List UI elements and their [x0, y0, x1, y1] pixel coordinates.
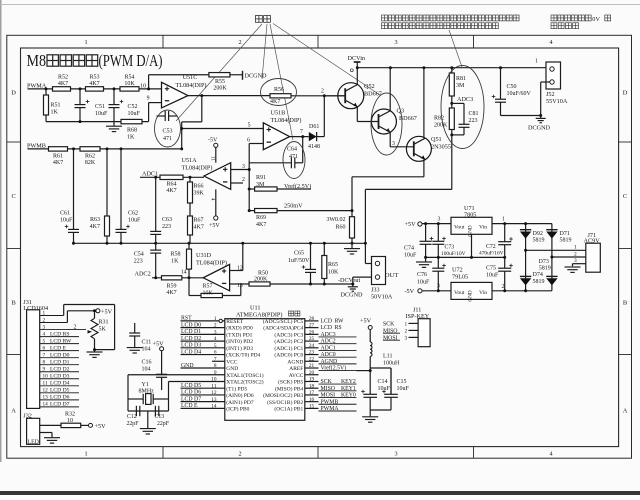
svg-text:2N3055: 2N3055 — [431, 144, 451, 151]
svg-text:104: 104 — [142, 347, 151, 353]
svg-text:10uF: 10uF — [486, 273, 499, 279]
svg-text:2: 2 — [405, 328, 408, 334]
svg-text:ADC3: ADC3 — [457, 96, 473, 103]
svg-text:39K: 39K — [194, 191, 205, 197]
svg-text:11: 11 — [43, 381, 48, 387]
svg-text:U51C: U51C — [183, 74, 198, 81]
svg-text:L11: L11 — [383, 354, 392, 360]
svg-text:D61: D61 — [309, 124, 319, 130]
svg-text:2: 2 — [214, 323, 217, 329]
svg-text:VCC: VCC — [226, 359, 238, 365]
svg-text:R61: R61 — [53, 154, 63, 160]
svg-text:LCD RW: LCD RW — [50, 338, 72, 344]
svg-text:+5V: +5V — [209, 223, 220, 229]
svg-text:18: 18 — [309, 383, 315, 389]
svg-text:5819: 5819 — [533, 238, 545, 244]
svg-text:LCD D4: LCD D4 — [181, 349, 201, 355]
svg-text:(SCK) PB5: (SCK) PB5 — [278, 379, 303, 386]
svg-text:4K7: 4K7 — [90, 224, 100, 230]
svg-text:AGND: AGND — [287, 359, 303, 365]
svg-text:C81: C81 — [469, 111, 479, 117]
svg-text:4: 4 — [214, 336, 217, 342]
svg-text:2: 2 — [321, 89, 324, 95]
svg-text:1K: 1K — [51, 110, 59, 116]
svg-text:C14: C14 — [378, 379, 388, 385]
svg-text:2: 2 — [242, 177, 245, 183]
svg-text:4: 4 — [43, 331, 46, 337]
svg-text:1K: 1K — [171, 259, 179, 265]
svg-text:5819: 5819 — [539, 266, 551, 272]
svg-text:2: 2 — [74, 325, 77, 331]
svg-text:223: 223 — [162, 224, 171, 230]
svg-text:D: D — [11, 89, 16, 96]
svg-text:C74: C74 — [404, 245, 414, 251]
svg-text:10uF: 10uF — [128, 111, 141, 117]
svg-text:470uF/16V: 470uF/16V — [479, 251, 504, 257]
svg-text:LCD D7: LCD D7 — [50, 402, 70, 408]
svg-text:XTAL2(TOSC2): XTAL2(TOSC2) — [226, 379, 264, 386]
svg-text:19: 19 — [309, 377, 315, 383]
svg-text:TL084(DIP): TL084(DIP) — [176, 82, 207, 89]
svg-text:R69: R69 — [256, 215, 266, 221]
svg-text:LCD D6: LCD D6 — [181, 390, 201, 396]
svg-text:R65: R65 — [328, 262, 338, 268]
svg-text:10uF: 10uF — [397, 386, 410, 392]
svg-text:GND: GND — [468, 290, 474, 301]
svg-text:4K7: 4K7 — [194, 225, 204, 231]
svg-text:C64: C64 — [287, 147, 297, 153]
svg-text:16: 16 — [309, 397, 315, 403]
svg-text:D: D — [623, 89, 628, 96]
svg-text:C50: C50 — [507, 84, 517, 90]
svg-text:+5V: +5V — [153, 340, 165, 347]
svg-text:GND: GND — [181, 363, 194, 369]
svg-text:D92: D92 — [533, 231, 543, 237]
svg-text:R81: R81 — [456, 76, 466, 82]
svg-text:R54: R54 — [124, 75, 134, 81]
svg-text:(SS/OC1B) PB2: (SS/OC1B) PB2 — [267, 399, 303, 406]
svg-text:C13: C13 — [155, 414, 165, 420]
svg-text:RESET: RESET — [226, 319, 243, 325]
svg-text:8: 8 — [43, 360, 46, 366]
svg-text:1: 1 — [84, 39, 87, 46]
svg-text:0V: 0V — [592, 16, 600, 23]
svg-text:U72: U72 — [452, 266, 463, 273]
svg-text:-DCVout: -DCVout — [338, 277, 361, 284]
svg-text:7: 7 — [300, 129, 303, 135]
svg-text:R91: R91 — [256, 175, 266, 181]
svg-text:AVCC: AVCC — [289, 373, 304, 379]
svg-text:Y1: Y1 — [142, 382, 149, 388]
svg-text:2: 2 — [238, 39, 241, 46]
svg-text:7805: 7805 — [464, 212, 476, 219]
svg-text:(OC1A) PB1: (OC1A) PB1 — [274, 405, 303, 412]
svg-text:GND: GND — [468, 225, 474, 236]
svg-text:10uF/60V: 10uF/60V — [507, 91, 532, 97]
svg-text:Q52: Q52 — [364, 83, 375, 90]
svg-text:LCD D0: LCD D0 — [50, 352, 70, 358]
svg-text:Vout: Vout — [454, 290, 465, 296]
svg-text:R62: R62 — [85, 154, 95, 160]
svg-text:10: 10 — [67, 418, 73, 424]
svg-text:471: 471 — [289, 154, 298, 160]
svg-text:XTAL1(TOSC1): XTAL1(TOSC1) — [226, 372, 264, 379]
svg-text:12: 12 — [211, 390, 217, 396]
svg-text:R59: R59 — [166, 283, 176, 289]
svg-text:(ADC2) PC2: (ADC2) PC2 — [274, 338, 303, 345]
svg-text:3M: 3M — [456, 83, 465, 89]
svg-text:R55: R55 — [215, 79, 225, 85]
svg-text:27: 27 — [309, 323, 315, 329]
svg-text:3W0.02: 3W0.02 — [326, 217, 345, 223]
svg-text:1uF/50V: 1uF/50V — [288, 258, 310, 264]
svg-text:R56: R56 — [274, 87, 284, 93]
svg-text:TL084(DIP): TL084(DIP) — [271, 117, 302, 124]
svg-text:J33: J33 — [371, 287, 380, 294]
svg-text:B: B — [623, 300, 627, 307]
svg-text:C53: C53 — [162, 129, 172, 135]
svg-text:+5V: +5V — [360, 318, 372, 325]
svg-text:Vin: Vin — [479, 290, 487, 296]
svg-text:7: 7 — [214, 356, 217, 362]
svg-text:4: 4 — [549, 451, 552, 458]
svg-text:1: 1 — [405, 321, 408, 327]
svg-text:Vin: Vin — [479, 225, 487, 231]
svg-text:C76: C76 — [417, 272, 427, 278]
svg-text:7: 7 — [43, 352, 46, 358]
svg-text:3M: 3M — [256, 182, 265, 188]
svg-text:ATMEGA8(PDIP): ATMEGA8(PDIP) — [236, 312, 282, 319]
svg-text:25: 25 — [309, 336, 315, 342]
svg-text:10uF: 10uF — [417, 280, 430, 286]
svg-text:R68: R68 — [127, 128, 137, 134]
svg-text:1K: 1K — [127, 135, 135, 141]
svg-text:5: 5 — [248, 122, 251, 128]
svg-text:R67: R67 — [194, 218, 204, 224]
svg-text:10K: 10K — [203, 291, 214, 297]
svg-text:U11: U11 — [250, 305, 260, 312]
svg-text:C72: C72 — [486, 244, 496, 250]
svg-text:LCD D3: LCD D3 — [181, 343, 201, 349]
svg-text:(ADC0) PC0: (ADC0) PC0 — [274, 352, 303, 359]
svg-text:(ADC1) PC1: (ADC1) PC1 — [274, 345, 303, 352]
svg-text:R50: R50 — [258, 270, 268, 276]
svg-text:R52: R52 — [58, 75, 68, 81]
svg-text:104: 104 — [142, 367, 151, 373]
svg-text:C62: C62 — [128, 211, 138, 217]
svg-text:10uF: 10uF — [404, 252, 417, 258]
svg-text:R57: R57 — [203, 284, 213, 290]
svg-text:100uF/10V: 100uF/10V — [441, 251, 466, 257]
svg-text:-5V: -5V — [405, 288, 415, 295]
svg-text:(MOSI/OC2) PB3: (MOSI/OC2) PB3 — [263, 392, 303, 399]
svg-text:6: 6 — [214, 350, 217, 356]
svg-text:5819: 5819 — [560, 238, 572, 244]
svg-text:LCD D2: LCD D2 — [50, 367, 70, 373]
svg-text:DCGND: DCGND — [341, 292, 364, 299]
svg-text:RW: RW — [335, 319, 345, 325]
svg-text:LCD D1: LCD D1 — [181, 329, 201, 335]
svg-text:1: 1 — [43, 310, 46, 316]
svg-text:LCD D5: LCD D5 — [181, 383, 201, 389]
svg-text:14: 14 — [181, 270, 187, 276]
svg-text:R60: R60 — [335, 225, 345, 231]
svg-text:1: 1 — [535, 58, 538, 64]
svg-text:Q51: Q51 — [431, 136, 442, 143]
svg-text:3: 3 — [574, 258, 577, 264]
svg-text:C11: C11 — [142, 340, 152, 346]
svg-text:C65: C65 — [294, 251, 304, 257]
svg-text:SCK: SCK — [383, 321, 395, 327]
svg-text:10K: 10K — [328, 270, 339, 276]
svg-text:223: 223 — [134, 259, 143, 265]
svg-text:LCD: LCD — [321, 325, 333, 331]
svg-text:79L05: 79L05 — [452, 273, 468, 280]
svg-text:200K: 200K — [254, 277, 268, 283]
svg-text:C61: C61 — [60, 211, 70, 217]
svg-text:LCD D5: LCD D5 — [50, 388, 70, 394]
svg-text:AREF: AREF — [289, 366, 303, 372]
svg-text:(PWM D/A): (PWM D/A) — [99, 51, 163, 70]
svg-text:200K: 200K — [434, 123, 448, 129]
svg-text:55V10A: 55V10A — [546, 98, 568, 105]
svg-text:3: 3 — [394, 451, 397, 458]
svg-text:R63: R63 — [90, 217, 100, 223]
svg-text:RST: RST — [181, 316, 192, 322]
svg-text:5: 5 — [214, 343, 217, 349]
svg-text:C73: C73 — [445, 244, 455, 250]
svg-text:D71: D71 — [560, 231, 570, 237]
svg-text:AC9V: AC9V — [584, 238, 601, 245]
svg-text:(T1) PD5: (T1) PD5 — [226, 385, 247, 392]
svg-text:4148: 4148 — [308, 144, 320, 150]
svg-text:+5V: +5V — [95, 423, 107, 430]
svg-text:RS: RS — [335, 325, 342, 331]
svg-text:15: 15 — [309, 403, 315, 409]
svg-text:5819: 5819 — [533, 279, 545, 285]
svg-text:(ADC3) PC3: (ADC3) PC3 — [274, 331, 303, 338]
svg-text:22pF: 22pF — [157, 421, 170, 427]
svg-text:6: 6 — [43, 345, 46, 351]
svg-text:A: A — [623, 407, 628, 414]
svg-text:LCD RS: LCD RS — [50, 331, 69, 337]
svg-text:(AIN0) PD6: (AIN0) PD6 — [226, 392, 254, 399]
svg-text:22: 22 — [309, 356, 315, 362]
svg-text:R58: R58 — [170, 252, 180, 258]
svg-text:LCD D1: LCD D1 — [50, 360, 70, 366]
svg-text:C51: C51 — [95, 104, 105, 110]
svg-text:LCD D7: LCD D7 — [181, 396, 201, 402]
svg-text:B: B — [11, 300, 15, 307]
svg-text:2: 2 — [238, 451, 241, 458]
svg-text:TL084(DIP): TL084(DIP) — [196, 259, 227, 266]
svg-text:(RXD) PD0: (RXD) PD0 — [226, 325, 253, 332]
svg-text:223: 223 — [469, 118, 478, 124]
svg-text:(INT1) PD3: (INT1) PD3 — [226, 345, 253, 352]
svg-text:4K7: 4K7 — [53, 160, 63, 166]
svg-text:C15: C15 — [397, 379, 407, 385]
svg-text:1: 1 — [502, 217, 505, 223]
svg-text:C63: C63 — [162, 217, 172, 223]
svg-text:ADC2: ADC2 — [135, 271, 151, 278]
svg-text:LCD E: LCD E — [181, 403, 198, 409]
svg-text:U31D: U31D — [196, 252, 212, 259]
svg-text:4K7: 4K7 — [256, 222, 266, 228]
svg-text:LCD D0: LCD D0 — [181, 322, 201, 328]
svg-text:13: 13 — [43, 395, 49, 401]
svg-text:GND: GND — [226, 366, 238, 372]
svg-text:Vout: Vout — [454, 225, 465, 231]
svg-text:(AIN1) PD7: (AIN1) PD7 — [226, 399, 254, 406]
svg-text:14: 14 — [43, 402, 49, 408]
svg-text:PWMA: PWMA — [27, 82, 47, 89]
svg-text:100uH: 100uH — [383, 361, 400, 367]
svg-text:17: 17 — [309, 390, 315, 396]
svg-text:13: 13 — [211, 397, 217, 403]
svg-text:U51B: U51B — [271, 110, 286, 117]
svg-text:24: 24 — [309, 343, 315, 349]
svg-text:M8: M8 — [27, 51, 47, 70]
svg-text:8: 8 — [214, 363, 217, 369]
svg-text:C: C — [11, 193, 15, 200]
svg-text:3: 3 — [394, 39, 397, 46]
svg-text:1: 1 — [84, 451, 87, 458]
svg-text:22pF: 22pF — [127, 421, 140, 427]
svg-text:LCD E: LCD E — [50, 345, 67, 351]
svg-text:28: 28 — [309, 316, 315, 322]
svg-text:LCD D4: LCD D4 — [50, 381, 70, 387]
svg-text:LCD D6: LCD D6 — [50, 395, 70, 401]
svg-text:9: 9 — [43, 367, 46, 373]
svg-text:DCGND: DCGND — [528, 125, 551, 132]
svg-text:10uF: 10uF — [60, 218, 73, 224]
svg-text:2: 2 — [502, 284, 505, 290]
svg-text:12: 12 — [43, 388, 49, 394]
svg-text:3: 3 — [214, 329, 217, 335]
svg-text:(XCK/T0) PD4: (XCK/T0) PD4 — [226, 352, 260, 359]
svg-text:C52: C52 — [128, 104, 138, 110]
svg-text:A: A — [11, 407, 16, 414]
svg-text:D74: D74 — [533, 272, 543, 278]
svg-text:200K: 200K — [213, 85, 227, 91]
svg-text:20: 20 — [309, 370, 315, 376]
svg-text:4K7: 4K7 — [166, 188, 176, 194]
svg-text:3: 3 — [392, 141, 395, 147]
svg-text:U51A: U51A — [182, 157, 198, 164]
svg-text:4K7: 4K7 — [89, 81, 99, 87]
svg-text:(INT0) PD2: (INT0) PD2 — [226, 338, 253, 345]
svg-text:21: 21 — [309, 363, 315, 369]
svg-text:R31: R31 — [99, 320, 109, 326]
svg-text:6: 6 — [247, 137, 250, 143]
svg-text:4K7: 4K7 — [270, 99, 280, 105]
svg-text:(ICP) PB0: (ICP) PB0 — [226, 405, 249, 412]
svg-text:14: 14 — [211, 403, 217, 409]
svg-text:10: 10 — [43, 374, 49, 380]
svg-text:3: 3 — [438, 217, 441, 223]
svg-text:5: 5 — [43, 338, 46, 344]
svg-text:10K: 10K — [124, 81, 135, 87]
svg-text:10: 10 — [140, 83, 146, 89]
svg-text:(ADC5/SCL) PC5: (ADC5/SCL) PC5 — [263, 318, 304, 325]
svg-text:C54: C54 — [134, 252, 144, 258]
svg-text:1: 1 — [574, 245, 577, 251]
svg-text:4K7: 4K7 — [58, 81, 68, 87]
svg-text:23: 23 — [309, 350, 315, 356]
svg-text:C16: C16 — [142, 360, 152, 366]
svg-text:C12: C12 — [127, 414, 137, 420]
svg-text:471: 471 — [163, 136, 172, 142]
svg-text:R66: R66 — [194, 184, 204, 190]
svg-text:R64: R64 — [166, 182, 176, 188]
svg-text:3: 3 — [43, 324, 46, 330]
svg-text:9: 9 — [147, 95, 150, 101]
svg-text:DCVin: DCVin — [348, 55, 366, 62]
svg-text:1: 1 — [214, 316, 217, 322]
svg-text:LCD: LCD — [321, 319, 333, 325]
svg-text:C75: C75 — [486, 266, 496, 272]
svg-text:LCD D2: LCD D2 — [181, 336, 201, 342]
svg-text:11: 11 — [210, 156, 215, 161]
svg-text:3: 3 — [437, 284, 440, 290]
svg-text:4: 4 — [549, 39, 552, 46]
svg-text:4K7: 4K7 — [166, 290, 176, 296]
svg-text:(MISO) PB4: (MISO) PB4 — [275, 385, 304, 392]
svg-text:PWMB: PWMB — [27, 142, 46, 149]
svg-text:5K: 5K — [99, 327, 107, 333]
svg-text:R51: R51 — [51, 103, 61, 109]
svg-text:26: 26 — [309, 329, 315, 335]
svg-text:+5V: +5V — [405, 221, 417, 228]
svg-text:TL084(DIP): TL084(DIP) — [182, 164, 213, 171]
svg-text:82K: 82K — [85, 160, 96, 166]
svg-text:LED: LED — [28, 439, 39, 445]
svg-text:10uF: 10uF — [95, 111, 108, 117]
svg-text:LCD D3: LCD D3 — [50, 374, 70, 380]
svg-text:Vref(2.5V): Vref(2.5V) — [284, 183, 311, 190]
svg-text:(TXD) PD1: (TXD) PD1 — [226, 331, 252, 338]
svg-text:250mV: 250mV — [284, 203, 303, 210]
svg-text:+5V: +5V — [101, 308, 113, 315]
svg-text:C: C — [623, 193, 627, 200]
svg-text:R53: R53 — [89, 75, 99, 81]
svg-text:-5V: -5V — [208, 137, 218, 143]
svg-text:(ADC4/SDA)PC4: (ADC4/SDA)PC4 — [263, 325, 303, 332]
svg-text:10uF: 10uF — [128, 218, 141, 224]
svg-text:3: 3 — [405, 335, 408, 341]
svg-text:11: 11 — [211, 383, 216, 389]
svg-text:DCGND: DCGND — [245, 72, 268, 79]
svg-text:50V10A: 50V10A — [371, 294, 393, 301]
svg-text:2: 2 — [574, 251, 577, 257]
svg-text:D73: D73 — [539, 259, 549, 265]
svg-text:OUT: OUT — [385, 272, 399, 279]
svg-text:R32: R32 — [65, 412, 75, 418]
svg-text:2: 2 — [43, 317, 46, 323]
